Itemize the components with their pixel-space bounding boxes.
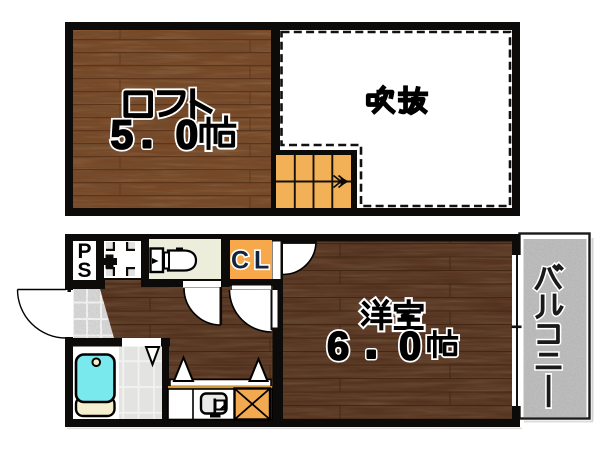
svg-text:6: 6 xyxy=(327,325,349,369)
svg-text:0: 0 xyxy=(176,112,199,158)
svg-text:S: S xyxy=(78,259,92,282)
svg-text:C: C xyxy=(231,247,249,275)
svg-text:5: 5 xyxy=(111,112,134,158)
svg-text:L: L xyxy=(254,247,269,275)
svg-text:0: 0 xyxy=(399,325,421,369)
